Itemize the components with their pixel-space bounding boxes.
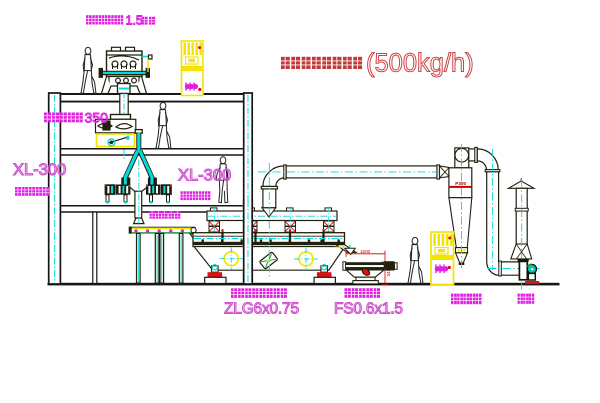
svg-text:P300: P300	[455, 181, 466, 186]
svg-text:FS0.6x1.5: FS0.6x1.5	[334, 301, 403, 318]
svg-text:1.5: 1.5	[126, 14, 143, 28]
svg-text:(500kg/h): (500kg/h)	[366, 50, 474, 78]
svg-text:XL-300: XL-300	[13, 161, 66, 179]
svg-text:XL-300: XL-300	[178, 167, 231, 185]
svg-text:1500: 1500	[360, 249, 371, 254]
svg-text:350: 350	[85, 110, 109, 126]
svg-text:ZLG6x0.75: ZLG6x0.75	[224, 301, 299, 318]
